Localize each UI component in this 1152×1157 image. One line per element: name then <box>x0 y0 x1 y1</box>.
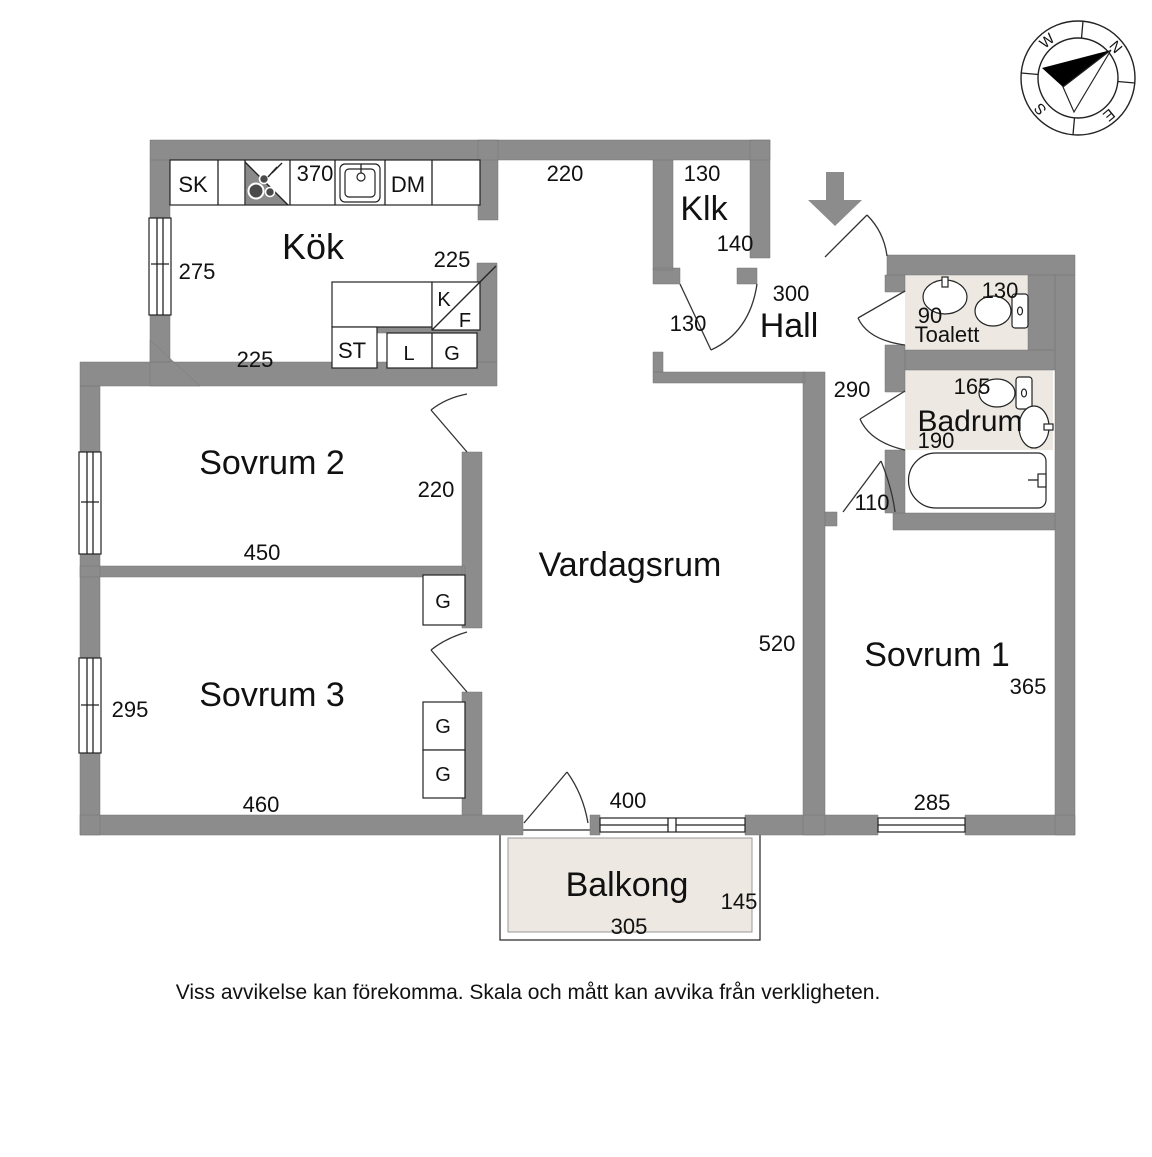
cab-label-g-kok: G <box>444 343 460 365</box>
bathtub-icon <box>908 453 1046 508</box>
dim-vardagsrum-right: 520 <box>759 631 796 656</box>
room-label-balkong: Balkong <box>566 866 689 904</box>
sovrum1-window <box>878 818 965 832</box>
floorplan-page: N E S W Kök Klk Hall Toalett Badrum Vard… <box>0 0 1152 1152</box>
cab-label-g3: G <box>435 764 451 786</box>
dim-toalett-width: 130 <box>982 278 1019 303</box>
dim-balkong-bottom: 305 <box>611 914 648 939</box>
dim-badrum-bottom: 190 <box>918 428 955 453</box>
compass-rose: N E S W <box>1021 21 1135 135</box>
cab-label-g1: G <box>435 591 451 613</box>
cab-label-g2: G <box>435 716 451 738</box>
lg-cabinets <box>387 333 477 368</box>
dim-badrum-top: 165 <box>954 374 991 399</box>
dim-sovrum1-door: 110 <box>854 490 889 515</box>
counter <box>332 282 432 327</box>
cab-label-f: F <box>459 310 471 332</box>
dim-balkong-right: 145 <box>721 889 758 914</box>
entrance-arrow-icon <box>808 172 862 226</box>
room-label-vardagsrum: Vardagsrum <box>539 546 722 584</box>
dim-kok-left: 275 <box>179 259 216 284</box>
cab-label-k: K <box>437 289 451 311</box>
room-label-sovrum3: Sovrum 3 <box>199 676 345 714</box>
dim-kok-kf: 225 <box>434 247 471 272</box>
dim-hall-right: 290 <box>834 377 871 402</box>
balcony-door <box>524 772 588 823</box>
entrance-arrow-head <box>808 200 862 226</box>
room-label-sovrum1: Sovrum 1 <box>864 636 1010 674</box>
dim-sovrum1-bottom: 285 <box>914 790 951 815</box>
cab-label-l: L <box>403 343 414 365</box>
kitchen-window <box>149 218 171 315</box>
room-label-kok: Kök <box>282 226 345 267</box>
disclaimer-text: Viss avvikelse kan förekomma. Skala och … <box>176 981 881 1004</box>
sovrum2-door <box>431 394 467 452</box>
sovrum3-window <box>79 658 101 753</box>
toalett-door <box>858 291 905 345</box>
room-label-klk: Klk <box>680 190 728 228</box>
dim-vardagsrum-bottom: 400 <box>610 788 647 813</box>
dim-kok-top: 370 <box>297 161 334 186</box>
dim-sovrum2-right: 220 <box>418 477 455 502</box>
floorplan-svg: N E S W Kök Klk Hall Toalett Badrum Vard… <box>0 0 1152 1152</box>
cab-label-st: ST <box>338 338 366 363</box>
dim-kok-bottom: 225 <box>237 347 274 372</box>
dim-sovrum3-left: 295 <box>112 697 149 722</box>
dim-sovrum1-right: 365 <box>1010 674 1047 699</box>
room-label-hall: Hall <box>760 307 819 345</box>
dim-toalett-depth: 90 <box>918 303 942 328</box>
dim-klk-bottom: 140 <box>717 231 754 256</box>
dim-vardagsrum-top: 220 <box>547 161 584 186</box>
cab-label-dm: DM <box>391 172 425 197</box>
dim-sovrum2-bottom: 450 <box>244 540 281 565</box>
cab-label-sk: SK <box>178 172 208 197</box>
sovrum3-door <box>431 632 467 692</box>
dim-klk-top: 130 <box>684 161 721 186</box>
room-label-sovrum2: Sovrum 2 <box>199 444 345 482</box>
dim-sovrum3-bottom: 460 <box>243 792 280 817</box>
dim-hall-top: 300 <box>773 281 810 306</box>
entrance-arrow-shaft <box>826 172 844 200</box>
dim-hall-left: 130 <box>670 311 707 336</box>
sovrum2-window <box>79 452 101 554</box>
kitchen-sink-icon <box>340 164 380 202</box>
vardagsrum-window <box>600 818 745 832</box>
